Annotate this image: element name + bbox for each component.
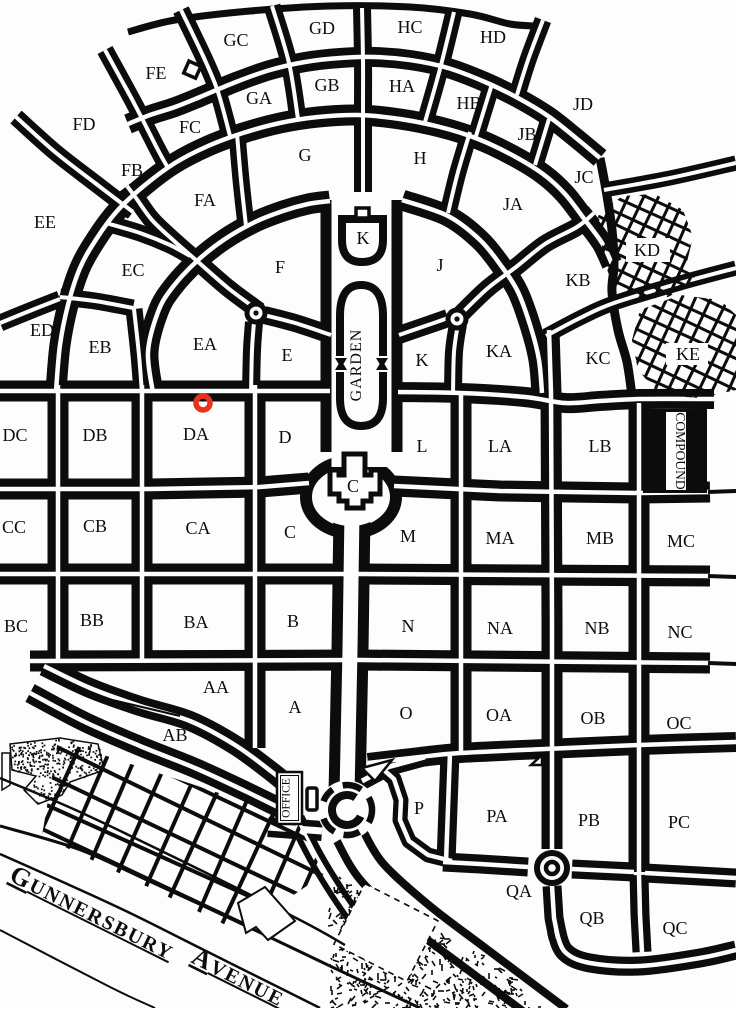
svg-text:LA: LA — [488, 436, 512, 456]
svg-text:OB: OB — [580, 708, 605, 728]
svg-text:HB: HB — [456, 93, 481, 113]
svg-text:GARDEN: GARDEN — [348, 329, 365, 402]
svg-text:EA: EA — [193, 334, 217, 354]
svg-text:KC: KC — [585, 348, 610, 368]
svg-text:QC: QC — [662, 918, 687, 938]
svg-text:FB: FB — [121, 160, 143, 180]
svg-text:EB: EB — [88, 337, 111, 357]
svg-text:CB: CB — [83, 516, 107, 536]
svg-text:BA: BA — [183, 612, 208, 632]
svg-text:COMPOUND: COMPOUND — [673, 412, 688, 490]
svg-text:PA: PA — [486, 806, 507, 826]
svg-text:BC: BC — [4, 616, 28, 636]
svg-text:GB: GB — [314, 75, 339, 95]
svg-text:KD: KD — [634, 240, 660, 260]
svg-text:MB: MB — [586, 528, 614, 548]
svg-text:DA: DA — [183, 424, 209, 444]
svg-text:QB: QB — [579, 908, 604, 928]
svg-text:GA: GA — [246, 88, 272, 108]
svg-text:M: M — [400, 526, 416, 546]
svg-text:KA: KA — [486, 341, 512, 361]
svg-text:O: O — [400, 703, 413, 723]
svg-text:GD: GD — [309, 18, 335, 38]
svg-text:FE: FE — [145, 63, 166, 83]
svg-text:MA: MA — [485, 528, 514, 548]
svg-text:GC: GC — [223, 30, 248, 50]
svg-text:J: J — [436, 255, 443, 275]
svg-text:FA: FA — [194, 190, 216, 210]
svg-text:OFFICE: OFFICE — [281, 778, 293, 818]
svg-text:HC: HC — [397, 17, 422, 37]
svg-text:AB: AB — [162, 725, 187, 745]
svg-text:G: G — [299, 145, 312, 165]
svg-text:C: C — [284, 522, 296, 542]
svg-text:HA: HA — [389, 76, 415, 96]
svg-text:CC: CC — [2, 517, 26, 537]
svg-text:PB: PB — [578, 810, 600, 830]
svg-text:F: F — [275, 257, 285, 277]
svg-text:H: H — [414, 148, 427, 168]
svg-text:AA: AA — [203, 677, 229, 697]
svg-text:FD: FD — [72, 114, 95, 134]
svg-text:E: E — [282, 345, 293, 365]
svg-text:B: B — [287, 611, 299, 631]
svg-text:JB: JB — [517, 124, 536, 144]
svg-text:JC: JC — [574, 167, 593, 187]
svg-text:CA: CA — [185, 518, 210, 538]
svg-text:K: K — [416, 350, 429, 370]
svg-text:N: N — [402, 616, 415, 636]
svg-text:JA: JA — [503, 194, 523, 214]
svg-text:NC: NC — [667, 622, 692, 642]
svg-text:HD: HD — [480, 27, 506, 47]
svg-text:P: P — [414, 798, 424, 818]
svg-text:PC: PC — [668, 812, 690, 832]
svg-text:A: A — [289, 697, 302, 717]
svg-text:OA: OA — [486, 705, 512, 725]
svg-text:DB: DB — [82, 425, 107, 445]
svg-text:KE: KE — [676, 344, 700, 364]
svg-text:OC: OC — [666, 713, 691, 733]
svg-text:K: K — [357, 228, 370, 248]
svg-text:JD: JD — [573, 94, 593, 114]
svg-text:L: L — [417, 436, 428, 456]
svg-text:QA: QA — [506, 881, 532, 901]
svg-text:NB: NB — [584, 618, 609, 638]
svg-text:MC: MC — [667, 531, 695, 551]
svg-text:C: C — [347, 476, 359, 496]
svg-text:EC: EC — [121, 260, 144, 280]
svg-text:ED: ED — [30, 320, 54, 340]
svg-text:KB: KB — [565, 270, 590, 290]
svg-text:FC: FC — [179, 117, 201, 137]
svg-text:BB: BB — [80, 610, 104, 630]
svg-text:LB: LB — [588, 436, 611, 456]
svg-text:DC: DC — [2, 425, 27, 445]
svg-text:D: D — [279, 427, 292, 447]
svg-text:EE: EE — [34, 212, 56, 232]
svg-text:NA: NA — [487, 618, 513, 638]
